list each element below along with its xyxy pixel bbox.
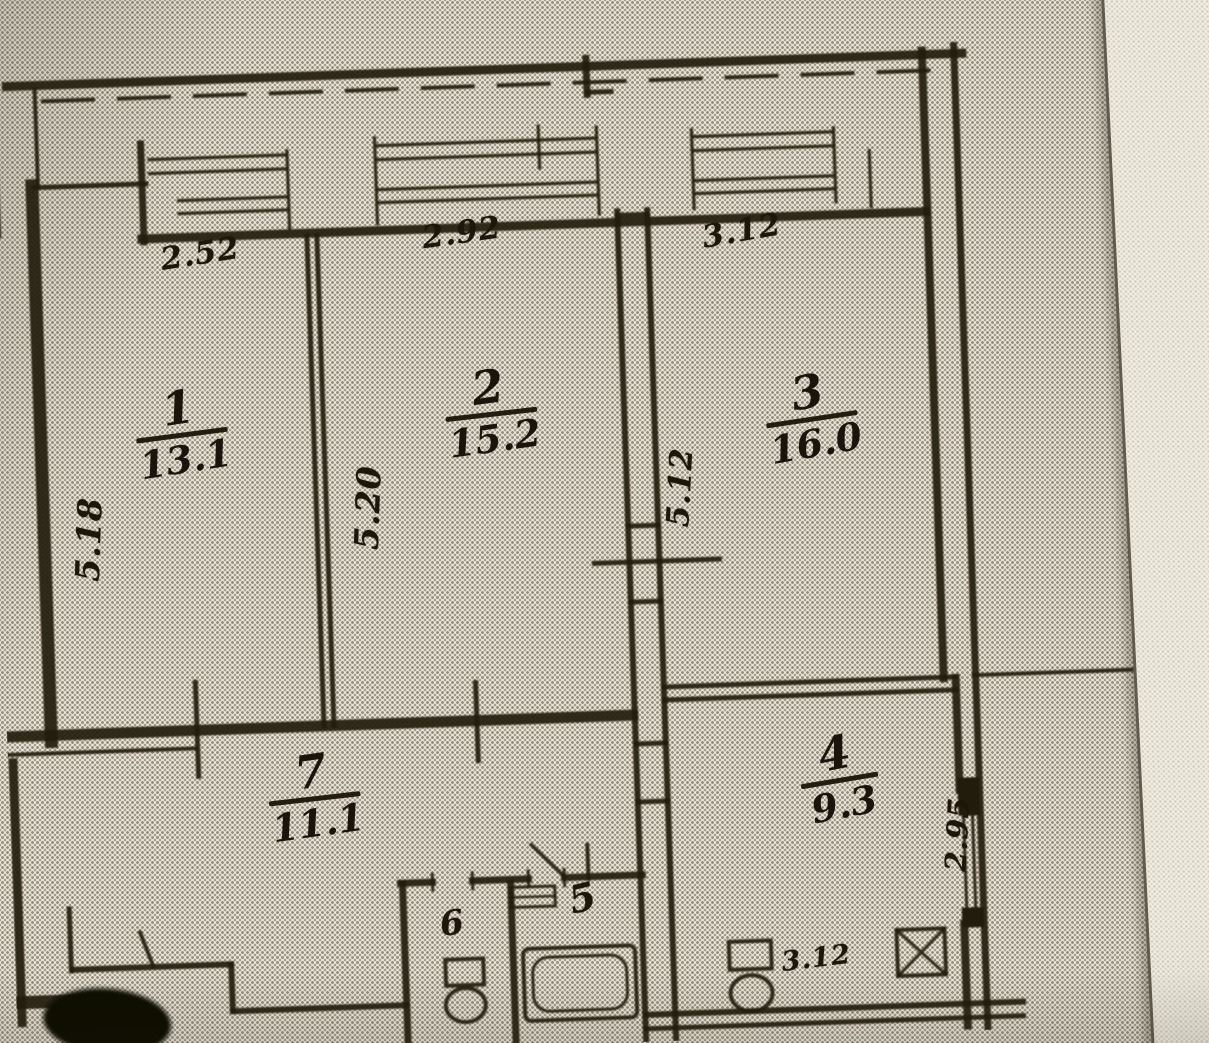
- dim-room1-depth: 5.18: [68, 496, 110, 582]
- dim-kitchen-depth: 2.95: [938, 796, 976, 872]
- floor-plan-drawing: [0, 0, 1209, 1043]
- floor-plan: 1 13.1 2 15.2 3 16.0 7 11.1 4 9.3 5 6 2.…: [0, 0, 1209, 1043]
- kitchen-stove: [729, 940, 772, 969]
- dim-room2-depth: 5.20: [347, 465, 389, 551]
- toilet-fixture: [445, 958, 484, 985]
- room-label-1: 1 13.1: [120, 379, 243, 488]
- dim-room3-depth: 5.12: [660, 447, 700, 528]
- room-label-2: 2 15.2: [430, 359, 552, 466]
- room-label-corridor: 7 11.1: [254, 743, 376, 850]
- room-label-toilet: 6: [437, 902, 467, 945]
- door-swing: [531, 844, 564, 878]
- marker-redaction-blob: [41, 983, 174, 1043]
- scanned-floor-plan: 1 13.1 2 15.2 3 16.0 7 11.1 4 9.3 5 6 2.…: [0, 0, 1209, 1043]
- room-label-3: 3 16.0: [749, 362, 873, 473]
- door-swing: [140, 932, 153, 966]
